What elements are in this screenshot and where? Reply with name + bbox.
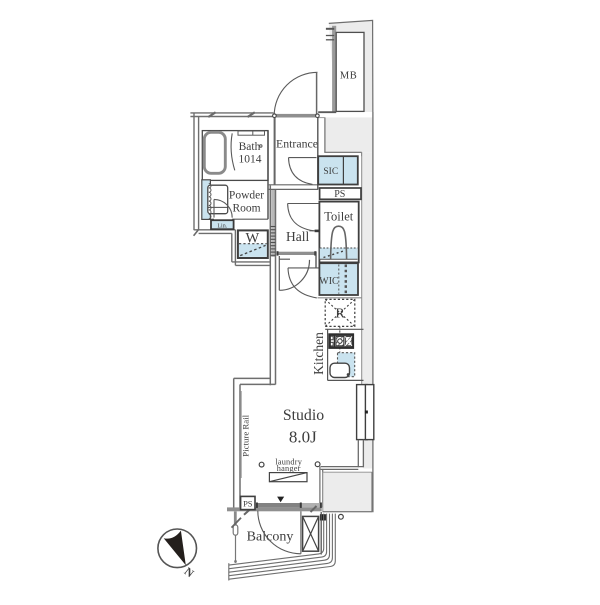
svg-text:MB: MB	[340, 71, 357, 82]
svg-text:Room: Room	[232, 203, 260, 215]
svg-text:Studio: Studio	[283, 407, 324, 424]
svg-text:1014: 1014	[239, 154, 262, 166]
svg-text:Balcony: Balcony	[247, 529, 294, 544]
svg-text:hanger: hanger	[277, 464, 301, 473]
svg-text:8.0J: 8.0J	[289, 428, 317, 447]
svg-text:W: W	[245, 230, 259, 246]
svg-text:Kitchen: Kitchen	[311, 332, 326, 375]
svg-text:PS: PS	[334, 189, 345, 200]
svg-text:Lin.: Lin.	[217, 223, 227, 229]
svg-text:Powder: Powder	[229, 190, 264, 202]
svg-text:SIC: SIC	[323, 167, 338, 177]
svg-text:Picture Rail: Picture Rail	[240, 414, 250, 456]
svg-text:PS: PS	[243, 498, 253, 508]
svg-text:Toilet: Toilet	[324, 209, 354, 223]
svg-text:Entrance: Entrance	[276, 136, 318, 150]
svg-text:Bath: Bath	[239, 141, 261, 153]
svg-text:Hall: Hall	[286, 229, 309, 244]
svg-text:WIC: WIC	[319, 276, 339, 287]
svg-text:R: R	[335, 306, 345, 321]
